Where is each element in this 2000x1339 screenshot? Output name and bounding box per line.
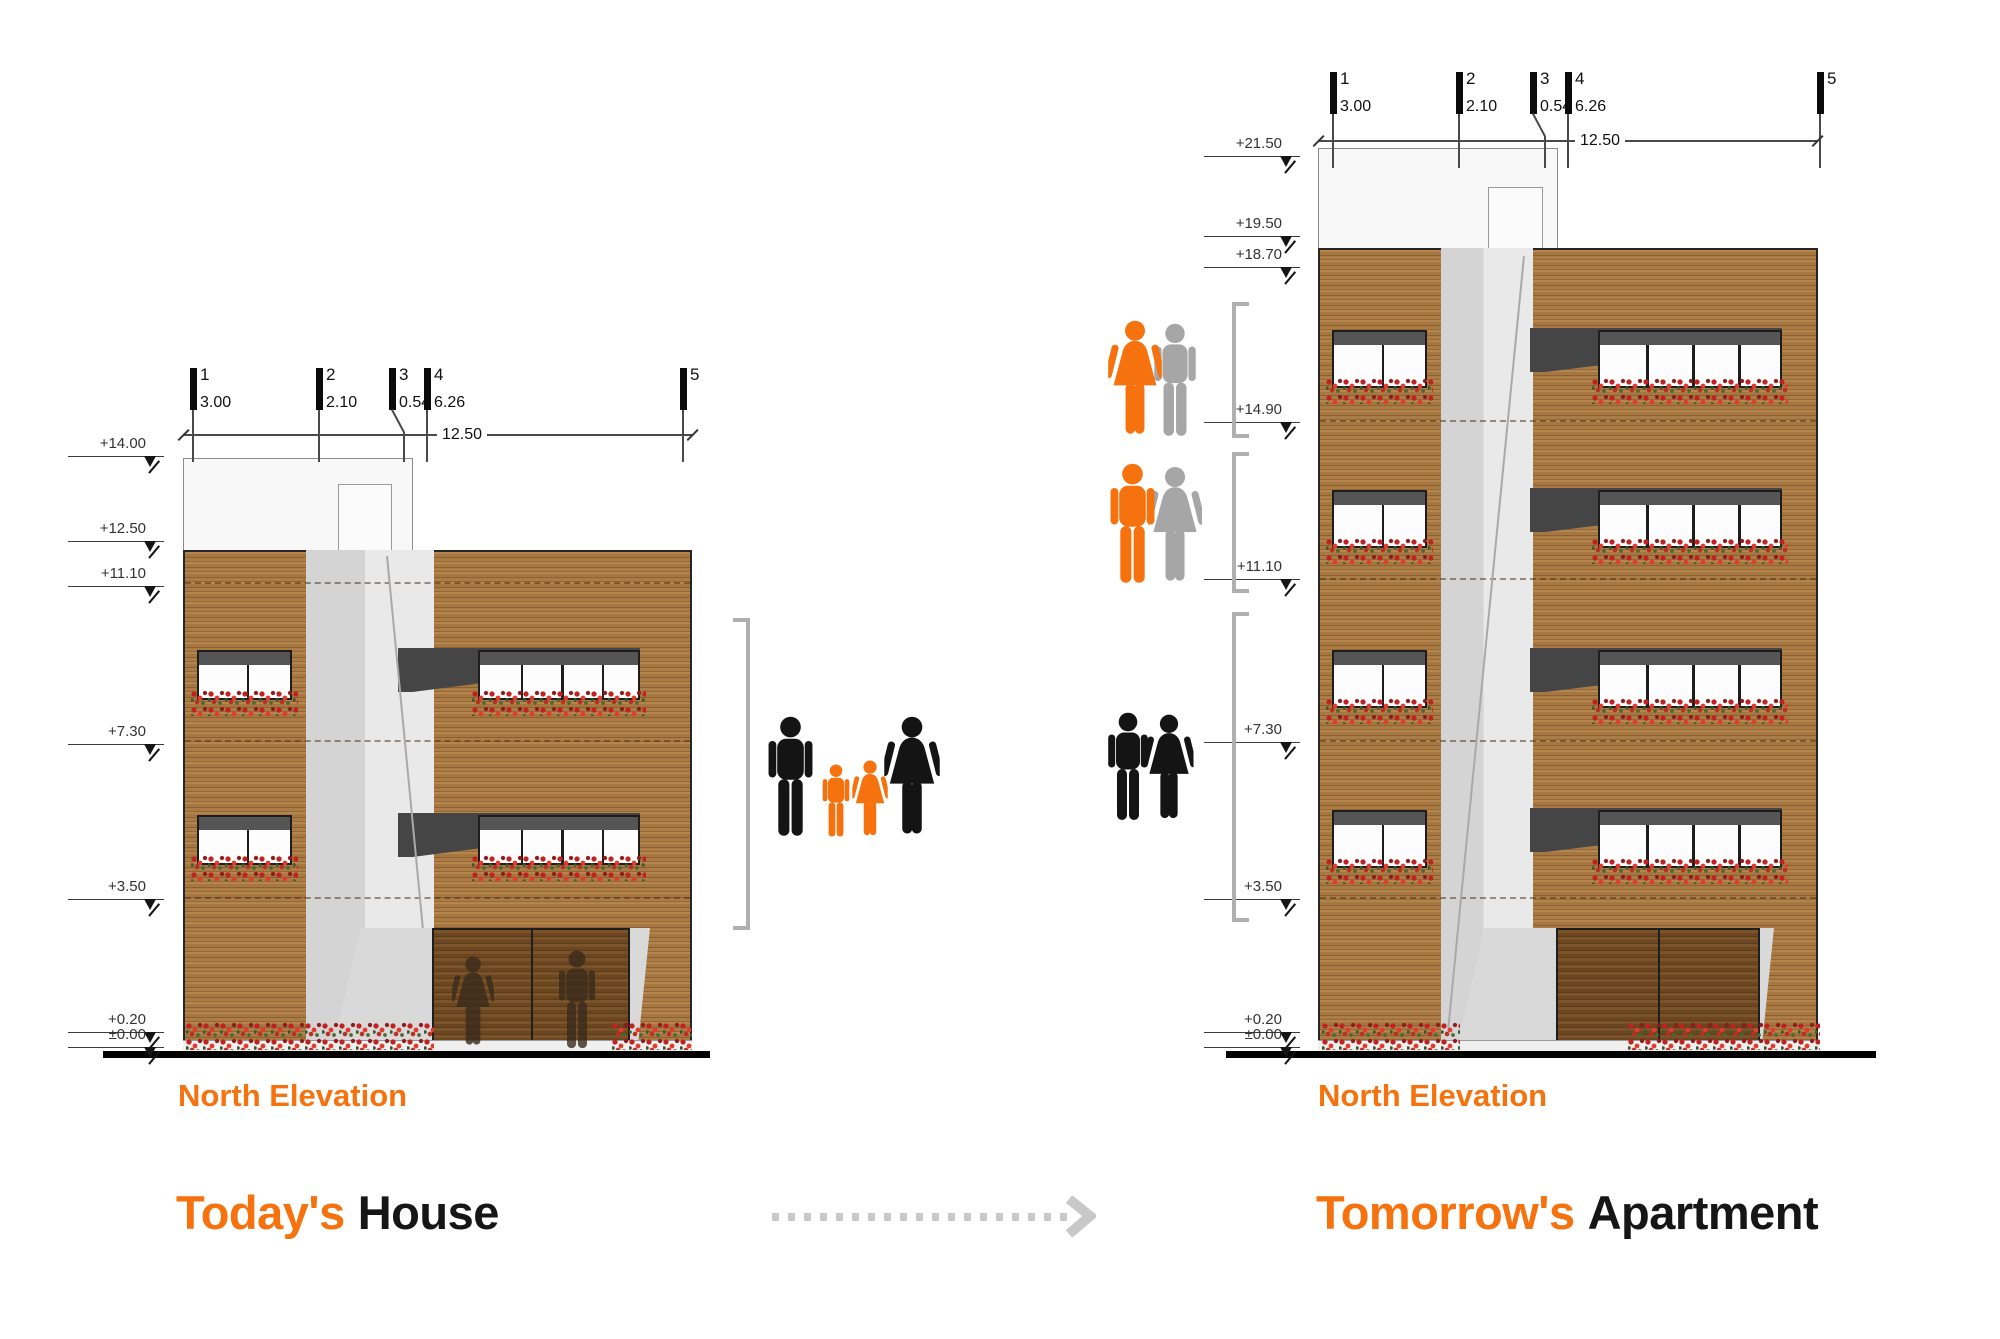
right-grid-dimension: 6.26 bbox=[1575, 98, 1606, 116]
right-grid-number: 3 bbox=[1540, 69, 1549, 89]
left-level-marker: +14.00 bbox=[68, 435, 164, 457]
left-grid-dimension: 3.00 bbox=[200, 394, 231, 412]
left-level-marker: ±0.00 bbox=[68, 1026, 164, 1048]
left-grid-extension-line bbox=[192, 410, 194, 462]
left-grid-extension-line bbox=[682, 410, 684, 462]
left-level-marker: +11.10 bbox=[68, 565, 164, 587]
right-grid-tick-bar bbox=[1565, 72, 1572, 114]
floor-joint-line bbox=[185, 582, 690, 584]
right-north-elevation-label: North Elevation bbox=[1318, 1078, 1547, 1114]
transformation-arrow-head-icon bbox=[1066, 1196, 1096, 1238]
right-window-flower-box bbox=[1592, 858, 1788, 884]
right-window-flower-box bbox=[1326, 698, 1433, 724]
right-level-marker: +3.50 bbox=[1204, 878, 1300, 900]
window-header bbox=[1334, 332, 1425, 345]
floor-joint-line bbox=[1320, 420, 1816, 422]
bracket-family-floors bbox=[746, 618, 750, 930]
right-grid-tick-bar bbox=[1330, 72, 1337, 114]
left-grid-tick-bar bbox=[424, 368, 431, 410]
window-header bbox=[199, 817, 290, 830]
right-level-marker: ±0.00 bbox=[1204, 1026, 1300, 1048]
couple-mid-floor bbox=[1108, 463, 1288, 585]
window-header bbox=[1600, 492, 1780, 505]
right-ground-flowers bbox=[1322, 1022, 1460, 1050]
window-header bbox=[199, 652, 290, 665]
right-overall-dimension-label: 12.50 bbox=[1575, 132, 1625, 150]
right-level-marker: +21.50 bbox=[1204, 135, 1300, 157]
man-pictogram-icon bbox=[1108, 463, 1157, 585]
floor-joint-line bbox=[185, 897, 690, 899]
right-ground-line bbox=[1226, 1051, 1876, 1058]
left-overall-dimension-label: 12.50 bbox=[437, 426, 487, 444]
left-title: Today'sHouse bbox=[176, 1185, 499, 1240]
right-grid-dimension: 3.00 bbox=[1340, 98, 1371, 116]
floor-joint-line bbox=[1320, 740, 1816, 742]
left-grid-number: 1 bbox=[200, 365, 209, 385]
left-grid-dimension: 2.10 bbox=[326, 394, 357, 412]
left-grid-extension-line bbox=[426, 410, 428, 462]
left-ground-line bbox=[103, 1051, 710, 1058]
left-grid-extension-line bbox=[318, 410, 320, 462]
left-level-marker: +3.50 bbox=[68, 878, 164, 900]
right-grid-number: 4 bbox=[1575, 69, 1584, 89]
window-header bbox=[1600, 652, 1780, 665]
right-ground-flowers bbox=[1628, 1022, 1820, 1050]
left-grid-tick-bar bbox=[389, 368, 396, 410]
left-level-marker: +12.50 bbox=[68, 520, 164, 542]
right-window-flower-box bbox=[1326, 378, 1433, 404]
left-grid-number: 2 bbox=[326, 365, 335, 385]
right-overall-dimension-line bbox=[1318, 140, 1817, 142]
right-grid-tick-bar bbox=[1456, 72, 1463, 114]
man-pictogram-icon bbox=[1106, 712, 1150, 822]
left-grid-extension-jog bbox=[391, 409, 405, 433]
silhouette-woman-icon bbox=[452, 956, 494, 1048]
right-title-black: Apartment bbox=[1588, 1186, 1819, 1239]
woman-pictogram-icon bbox=[1108, 320, 1162, 438]
left-ground-flowers bbox=[612, 1022, 692, 1050]
left-title-black: House bbox=[358, 1186, 499, 1239]
right-grid-number: 5 bbox=[1827, 69, 1836, 89]
right-roof-door bbox=[1488, 187, 1543, 250]
window-header bbox=[1334, 812, 1425, 825]
woman-pictogram-icon bbox=[1144, 714, 1194, 822]
window-header bbox=[1600, 332, 1780, 345]
right-title-orange: Tomorrow's bbox=[1316, 1186, 1575, 1239]
transformation-arrow-dots bbox=[772, 1213, 1068, 1221]
left-grid-dimension: 6.26 bbox=[434, 394, 465, 412]
family-todays-house bbox=[766, 716, 946, 838]
floor-joint-line bbox=[1320, 897, 1816, 899]
window-header bbox=[1334, 492, 1425, 505]
left-ground-flowers bbox=[186, 1022, 434, 1050]
right-level-marker: +19.50 bbox=[1204, 215, 1300, 237]
left-window-flower-box bbox=[191, 855, 298, 881]
right-grid-dimension: 2.10 bbox=[1466, 98, 1497, 116]
man-pictogram-icon bbox=[766, 716, 815, 838]
right-window-flower-box bbox=[1592, 378, 1788, 404]
window-header bbox=[480, 817, 638, 830]
silhouette-man-icon bbox=[556, 950, 598, 1050]
right-grid-tick-bar bbox=[1530, 72, 1537, 114]
left-grid-tick-bar bbox=[190, 368, 197, 410]
right-grid-number: 2 bbox=[1466, 69, 1475, 89]
woman-pictogram-icon bbox=[884, 716, 940, 838]
woman-pictogram-icon bbox=[852, 760, 888, 838]
window-header bbox=[480, 652, 638, 665]
floor-joint-line bbox=[185, 740, 690, 742]
left-grid-tick-bar bbox=[680, 368, 687, 410]
right-level-marker: +18.70 bbox=[1204, 246, 1300, 268]
man-pictogram-icon bbox=[821, 764, 851, 838]
right-grid-number: 1 bbox=[1340, 69, 1349, 89]
left-window-flower-box bbox=[191, 690, 298, 716]
couple-lower-floors bbox=[1106, 712, 1286, 822]
right-grid-extension-line bbox=[1819, 114, 1821, 168]
right-window-flower-box bbox=[1326, 858, 1433, 884]
architectural-elevation-diagram: North Elevation Today'sHouse North Eleva… bbox=[0, 0, 2000, 1339]
right-window-flower-box bbox=[1592, 698, 1788, 724]
window-header bbox=[1600, 812, 1780, 825]
left-level-marker: +7.30 bbox=[68, 723, 164, 745]
couple-top-floor bbox=[1108, 320, 1288, 438]
left-roof-door bbox=[338, 484, 392, 552]
right-window-flower-box bbox=[1326, 538, 1433, 564]
left-north-elevation-label: North Elevation bbox=[178, 1078, 407, 1114]
right-window-flower-box bbox=[1592, 538, 1788, 564]
left-grid-extension-line bbox=[403, 432, 405, 462]
window-header bbox=[1334, 652, 1425, 665]
left-title-orange: Today's bbox=[176, 1186, 345, 1239]
right-grid-tick-bar bbox=[1817, 72, 1824, 114]
left-grid-number: 4 bbox=[434, 365, 443, 385]
left-grid-number: 5 bbox=[690, 365, 699, 385]
left-window-flower-box bbox=[472, 855, 646, 881]
left-grid-number: 3 bbox=[399, 365, 408, 385]
floor-joint-line bbox=[1320, 578, 1816, 580]
left-window-flower-box bbox=[472, 690, 646, 716]
right-title: Tomorrow'sApartment bbox=[1316, 1185, 1818, 1240]
left-grid-tick-bar bbox=[316, 368, 323, 410]
right-grid-extension-jog bbox=[1532, 113, 1546, 137]
